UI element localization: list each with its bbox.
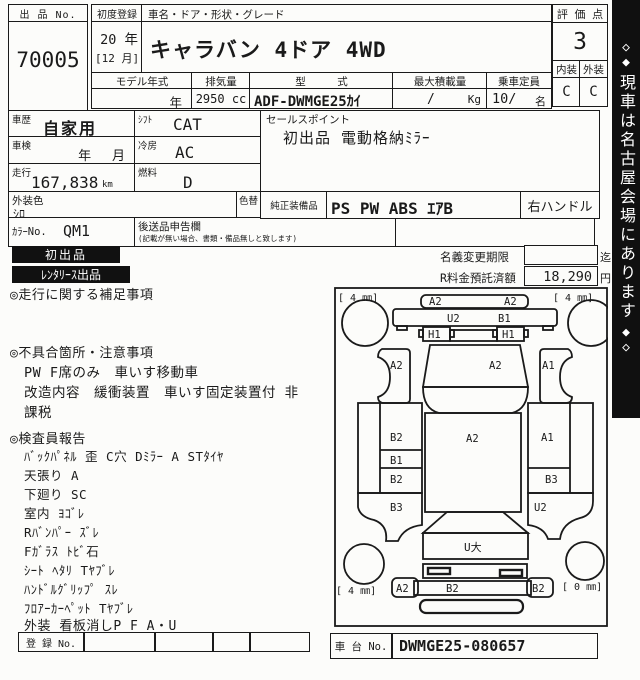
headlight-tab bbox=[450, 330, 454, 337]
max-load-cell: / Kg bbox=[392, 88, 488, 109]
exterior-grade: C bbox=[579, 77, 608, 107]
rear-bumper bbox=[414, 581, 531, 595]
inspector-line: Fｶﾞﾗｽ ﾄﾋﾞ石 bbox=[24, 541, 99, 560]
inspector-line: 下廻り SC bbox=[24, 484, 87, 503]
headlight-tab bbox=[524, 330, 528, 337]
code-tailgate: U大 bbox=[464, 540, 482, 554]
chassis-no-cell: DWMGE25-080657 bbox=[392, 633, 598, 659]
car-name-label: 車名・ドア・形状・グレード bbox=[148, 7, 285, 22]
sales-point-label: セールスポイント bbox=[266, 112, 350, 127]
roof-panel bbox=[425, 413, 521, 512]
diamond-hollow-icon: ◇ bbox=[622, 40, 630, 55]
score-label: 評 価 点 bbox=[552, 4, 608, 24]
taillight-right bbox=[500, 570, 522, 576]
color-no-value: QM1 bbox=[63, 222, 90, 240]
code-side-right-2: B3 bbox=[545, 474, 558, 486]
code-headlight-left: H1 bbox=[428, 329, 441, 341]
ext-color-cell: 外装色 ｼﾛ bbox=[8, 191, 238, 219]
equipment-label: 純正装備品 bbox=[260, 191, 328, 219]
rental-listing-badge: ﾚﾝﾀﾘｰｽ出品 bbox=[12, 266, 130, 283]
reg-no-cell bbox=[250, 632, 310, 652]
diagram-frame bbox=[335, 288, 607, 626]
recycle-fee-box: 18,290 bbox=[524, 266, 598, 286]
front-panel bbox=[393, 309, 557, 326]
auction-sheet: 出 品 No. 70005 初度登録 20 年 [12 月] 車名・ドア・形状・… bbox=[0, 0, 640, 680]
model-code-cell: ADF-DWMGE25ｶｲ bbox=[249, 88, 394, 109]
handle-cell: 右ハンドル bbox=[520, 191, 600, 219]
rear-window bbox=[423, 512, 528, 533]
max-load-value: / bbox=[427, 92, 435, 107]
first-reg-year: 20 年 bbox=[100, 28, 138, 48]
code-front-bumper-right: A2 bbox=[504, 296, 517, 308]
quarter-left bbox=[358, 493, 422, 541]
color-no-cell: ｶﾗｰNo. QM1 bbox=[8, 217, 136, 247]
inspector-line: ﾊﾞｯｸﾊﾟﾈﾙ 歪 C穴 Dﾐﾗｰ A STﾀｲﾔ bbox=[24, 446, 224, 465]
lot-no-cell: 70005 bbox=[8, 21, 88, 112]
car-name: キャラバン 4ドア 4WD bbox=[150, 34, 387, 64]
car-name-cell: キャラバン 4ドア 4WD bbox=[141, 21, 552, 74]
reg-no-label: 登 録 No. bbox=[18, 632, 84, 652]
inspector-line: 天張り A bbox=[24, 465, 79, 484]
reg-no-cell bbox=[155, 632, 213, 652]
mileage-label: 走行 bbox=[12, 165, 31, 179]
name-change-box bbox=[524, 245, 598, 265]
model-year-value: 年 bbox=[169, 92, 182, 111]
diamond-hollow-icon: ◇ bbox=[622, 340, 630, 355]
venue-banner: ◇ ◆ 現車は名古屋会場にあります ◆ ◇ bbox=[612, 0, 640, 418]
code-quarter-right: U2 bbox=[534, 502, 547, 514]
quarter-right bbox=[528, 493, 593, 539]
lot-no: 70005 bbox=[9, 48, 87, 72]
code-side-left-2: B1 bbox=[390, 455, 403, 467]
code-headlight-right: H1 bbox=[502, 329, 515, 341]
shift-label: ｼﾌﾄ bbox=[138, 112, 152, 126]
mileage-cell: 走行 167,838 km bbox=[8, 163, 136, 193]
tire-depth-front-left: [ 4 ㎜] bbox=[338, 293, 378, 304]
code-side-left-1: B2 bbox=[390, 432, 403, 444]
code-rear-bumper-left: A2 bbox=[396, 583, 409, 595]
code-fender-right: A1 bbox=[542, 360, 555, 372]
mileage-note-title: ◎走行に関する補足事項 bbox=[10, 284, 153, 303]
wheel-front-right bbox=[568, 300, 608, 346]
venue-banner-text: 現車は名古屋会場にあります bbox=[614, 74, 638, 321]
inspection-value: 年 月 bbox=[78, 145, 125, 164]
headlight-tab bbox=[493, 330, 497, 337]
front-panel-tab bbox=[543, 326, 553, 330]
capacity-unit: 名 bbox=[535, 93, 546, 109]
color-change-cell: 色替 bbox=[236, 191, 262, 219]
code-front-bumper-left: A2 bbox=[429, 296, 442, 308]
code-front-panel-right: B1 bbox=[498, 313, 511, 325]
equipment-cell: PS PW ABS ｴｱB bbox=[326, 191, 522, 219]
later-goods-note: (記載が無い場合、書類・備品無しと致します) bbox=[138, 233, 297, 244]
windshield bbox=[423, 345, 528, 387]
history-cell: 車歴 自家用 bbox=[8, 110, 136, 138]
capacity-value: 10/ bbox=[492, 91, 516, 107]
first-reg-month: [12 月] bbox=[95, 50, 139, 66]
inspector-line: ｼｰﾄ ﾍﾀﾘ Tﾔﾌﾞﾚ bbox=[24, 560, 115, 579]
tire-depth-rear-right: [ 0 ㎜] bbox=[562, 582, 602, 593]
code-roof: A2 bbox=[466, 433, 479, 445]
reg-no-cell bbox=[84, 632, 155, 652]
side-right-panel bbox=[528, 403, 593, 493]
sales-point-cell: セールスポイント 初出品 電動格納ﾐﾗｰ bbox=[260, 110, 600, 193]
ac-cell: 冷房 AC bbox=[134, 136, 262, 165]
later-goods-label: 後送品申告欄 bbox=[138, 219, 201, 234]
tire-depth-front-right: [ 4 ㎜] bbox=[553, 293, 593, 304]
displacement-value: 2950 cc bbox=[191, 88, 251, 109]
wheel-rear-left bbox=[344, 544, 384, 584]
cab-roof-front bbox=[423, 387, 528, 413]
fender-right bbox=[540, 349, 572, 403]
score-value: 3 bbox=[552, 22, 608, 62]
taillight-left bbox=[428, 568, 450, 574]
front-panel-tab bbox=[397, 326, 407, 330]
front-grille bbox=[450, 330, 497, 341]
color-no-label: ｶﾗｰNo. bbox=[12, 224, 47, 239]
code-rear-bumper-center: B2 bbox=[446, 583, 459, 595]
sales-point-value: 初出品 電動格納ﾐﾗｰ bbox=[283, 127, 431, 148]
shift-value: CAT bbox=[173, 115, 202, 134]
ac-value: AC bbox=[175, 143, 194, 162]
inspector-title: ◎検査員報告 bbox=[10, 428, 86, 447]
fuel-value: D bbox=[183, 173, 193, 192]
reg-no-cell bbox=[213, 632, 250, 652]
fender-left bbox=[378, 349, 410, 403]
code-quarter-left: B3 bbox=[390, 502, 403, 514]
code-front-panel-left: U2 bbox=[447, 313, 460, 325]
interior-grade: C bbox=[552, 77, 581, 107]
code-windshield: A2 bbox=[489, 360, 502, 372]
diamond-filled-icon: ◆ bbox=[622, 325, 630, 340]
first-reg-cell: 20 年 [12 月] bbox=[91, 21, 143, 74]
diamond-filled-icon: ◆ bbox=[622, 55, 630, 70]
defect-line: 改造内容 緩衝装置 車いす固定装置付 非 bbox=[24, 381, 299, 401]
equipment-value: PS PW ABS ｴｱB bbox=[331, 195, 453, 219]
later-goods-empty-cell bbox=[395, 217, 595, 247]
fuel-label: 燃料 bbox=[138, 165, 157, 179]
defects-title: ◎不具合箇所・注意事項 bbox=[10, 342, 153, 361]
wheel-front-left bbox=[342, 300, 388, 346]
inspector-line: Rﾊﾞﾝﾊﾟｰ ｽﾞﾚ bbox=[24, 522, 99, 541]
fuel-cell: 燃料 D bbox=[134, 163, 262, 193]
model-year-cell: 年 bbox=[91, 88, 193, 109]
chassis-no-label: 車 台 No. bbox=[330, 633, 392, 659]
defect-line: PW F席のみ 車いす移動車 bbox=[24, 361, 199, 381]
shift-cell: ｼﾌﾄ CAT bbox=[134, 110, 262, 138]
history-label: 車歴 bbox=[12, 112, 31, 126]
model-code-value: ADF-DWMGE25ｶｲ bbox=[254, 91, 361, 111]
first-listing-badge: 初出品 bbox=[12, 246, 120, 263]
inspection-label: 車検 bbox=[12, 138, 31, 152]
headlight-tab bbox=[419, 330, 423, 337]
name-change-unit: 迄 bbox=[600, 249, 611, 265]
code-side-left-3: B2 bbox=[390, 474, 403, 486]
inspector-line: ﾊﾝﾄﾞﾙｸﾞﾘｯﾌﾟ ｽﾚ bbox=[24, 579, 118, 598]
tire-depth-rear-left: [ 4 ㎜] bbox=[336, 586, 376, 597]
mileage-value: 167,838 bbox=[31, 173, 98, 192]
inspection-cell: 車検 年 月 bbox=[8, 136, 136, 165]
code-rear-bumper-right: B2 bbox=[532, 583, 545, 595]
rear-bumper-lower bbox=[420, 600, 523, 613]
name-change-label: 名義変更期限 bbox=[440, 249, 509, 265]
chassis-no-value: DWMGE25-080657 bbox=[399, 637, 525, 655]
mileage-unit: km bbox=[102, 180, 113, 190]
code-side-right-1: A1 bbox=[541, 432, 554, 444]
recycle-fee-unit: 円 bbox=[600, 270, 611, 286]
color-change-label: 色替 bbox=[239, 193, 258, 207]
capacity-cell: 10/ 名 bbox=[486, 88, 552, 109]
defect-line: 課税 bbox=[24, 401, 52, 421]
code-fender-left: A2 bbox=[390, 360, 403, 372]
wheel-rear-right bbox=[566, 542, 604, 580]
later-goods-cell: 後送品申告欄 (記載が無い場合、書類・備品無しと致します) bbox=[134, 217, 397, 247]
recycle-fee-label: R料金預託済額 bbox=[440, 270, 516, 286]
recycle-fee-value: 18,290 bbox=[543, 269, 592, 285]
inspector-line: 室内 ﾖｺﾞﾚ bbox=[24, 503, 85, 522]
max-load-unit: Kg bbox=[468, 93, 481, 106]
ac-label: 冷房 bbox=[138, 138, 157, 152]
vehicle-damage-diagram: [ 4 ㎜] [ 4 ㎜] [ 4 ㎜] [ 0 ㎜] A2 A2 U2 B1 … bbox=[334, 287, 608, 628]
